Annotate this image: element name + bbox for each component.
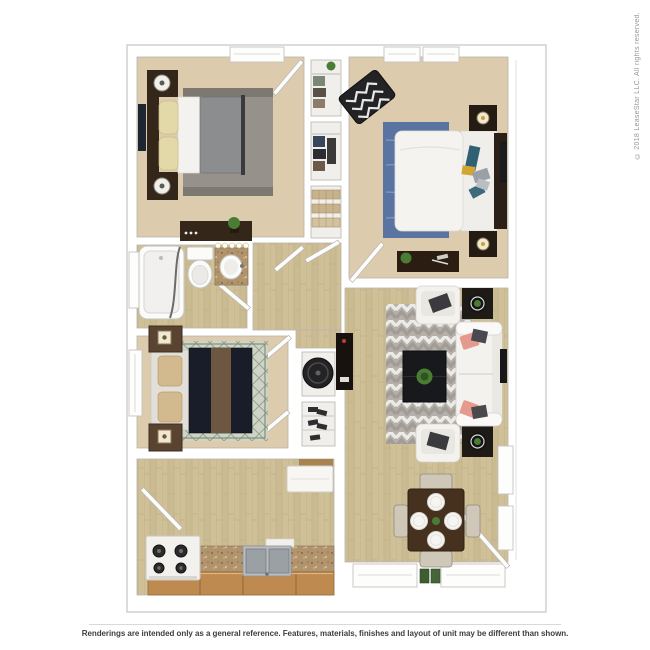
range-stove xyxy=(146,536,200,580)
floor-plan-rendering xyxy=(0,0,650,650)
coffee-table xyxy=(403,351,446,402)
page-canvas: © 2018 LeaseStar LLC. All rights reserve… xyxy=(0,0,650,650)
pillow xyxy=(471,405,488,419)
dining-chair xyxy=(394,505,408,537)
desk xyxy=(397,251,459,272)
pillow xyxy=(159,101,178,134)
pillow xyxy=(159,137,178,170)
hallway-floor xyxy=(253,243,341,330)
pillow xyxy=(158,392,182,422)
side-table xyxy=(462,288,493,319)
dining-window-left xyxy=(353,564,417,587)
closet-plant xyxy=(327,62,336,71)
plant xyxy=(228,217,240,229)
armchair xyxy=(416,424,460,462)
dining-table xyxy=(408,489,464,551)
dining-chair xyxy=(420,474,452,490)
wall-tv xyxy=(500,141,507,183)
centerpiece xyxy=(432,517,440,525)
bedroom-3-furniture xyxy=(149,326,268,451)
bathtub xyxy=(139,246,184,319)
double-sink xyxy=(243,546,291,576)
toilet xyxy=(187,247,213,288)
plant xyxy=(401,253,412,264)
vanity-sink xyxy=(215,243,249,285)
wall-tv xyxy=(138,104,146,151)
sofa xyxy=(456,322,502,426)
bedroom-3-window xyxy=(129,350,142,416)
plant xyxy=(474,300,481,307)
dining-chair xyxy=(466,505,480,537)
pillow xyxy=(158,356,182,386)
bed xyxy=(395,131,507,231)
water-heater xyxy=(303,358,333,388)
bed-runner xyxy=(211,348,231,433)
bed xyxy=(151,348,252,433)
dining-window-right xyxy=(441,564,505,587)
door-mat xyxy=(420,569,429,583)
side-table xyxy=(462,426,493,457)
wall-tv xyxy=(500,349,507,383)
plant xyxy=(474,438,481,445)
bathroom-window xyxy=(129,252,140,308)
hallway-stub-floor xyxy=(296,330,341,348)
copyright-watermark: © 2018 LeaseStar LLC. All rights reserve… xyxy=(634,12,641,159)
disclaimer-text: Renderings are intended only as a genera… xyxy=(0,629,650,638)
armchair xyxy=(416,286,460,324)
bedroom-1-window xyxy=(230,47,284,62)
footer: Renderings are intended only as a genera… xyxy=(0,624,650,638)
footer-divider xyxy=(89,624,561,625)
dining-chair xyxy=(420,551,452,567)
door-mat xyxy=(431,569,440,583)
closet-3-baskets xyxy=(312,190,340,227)
